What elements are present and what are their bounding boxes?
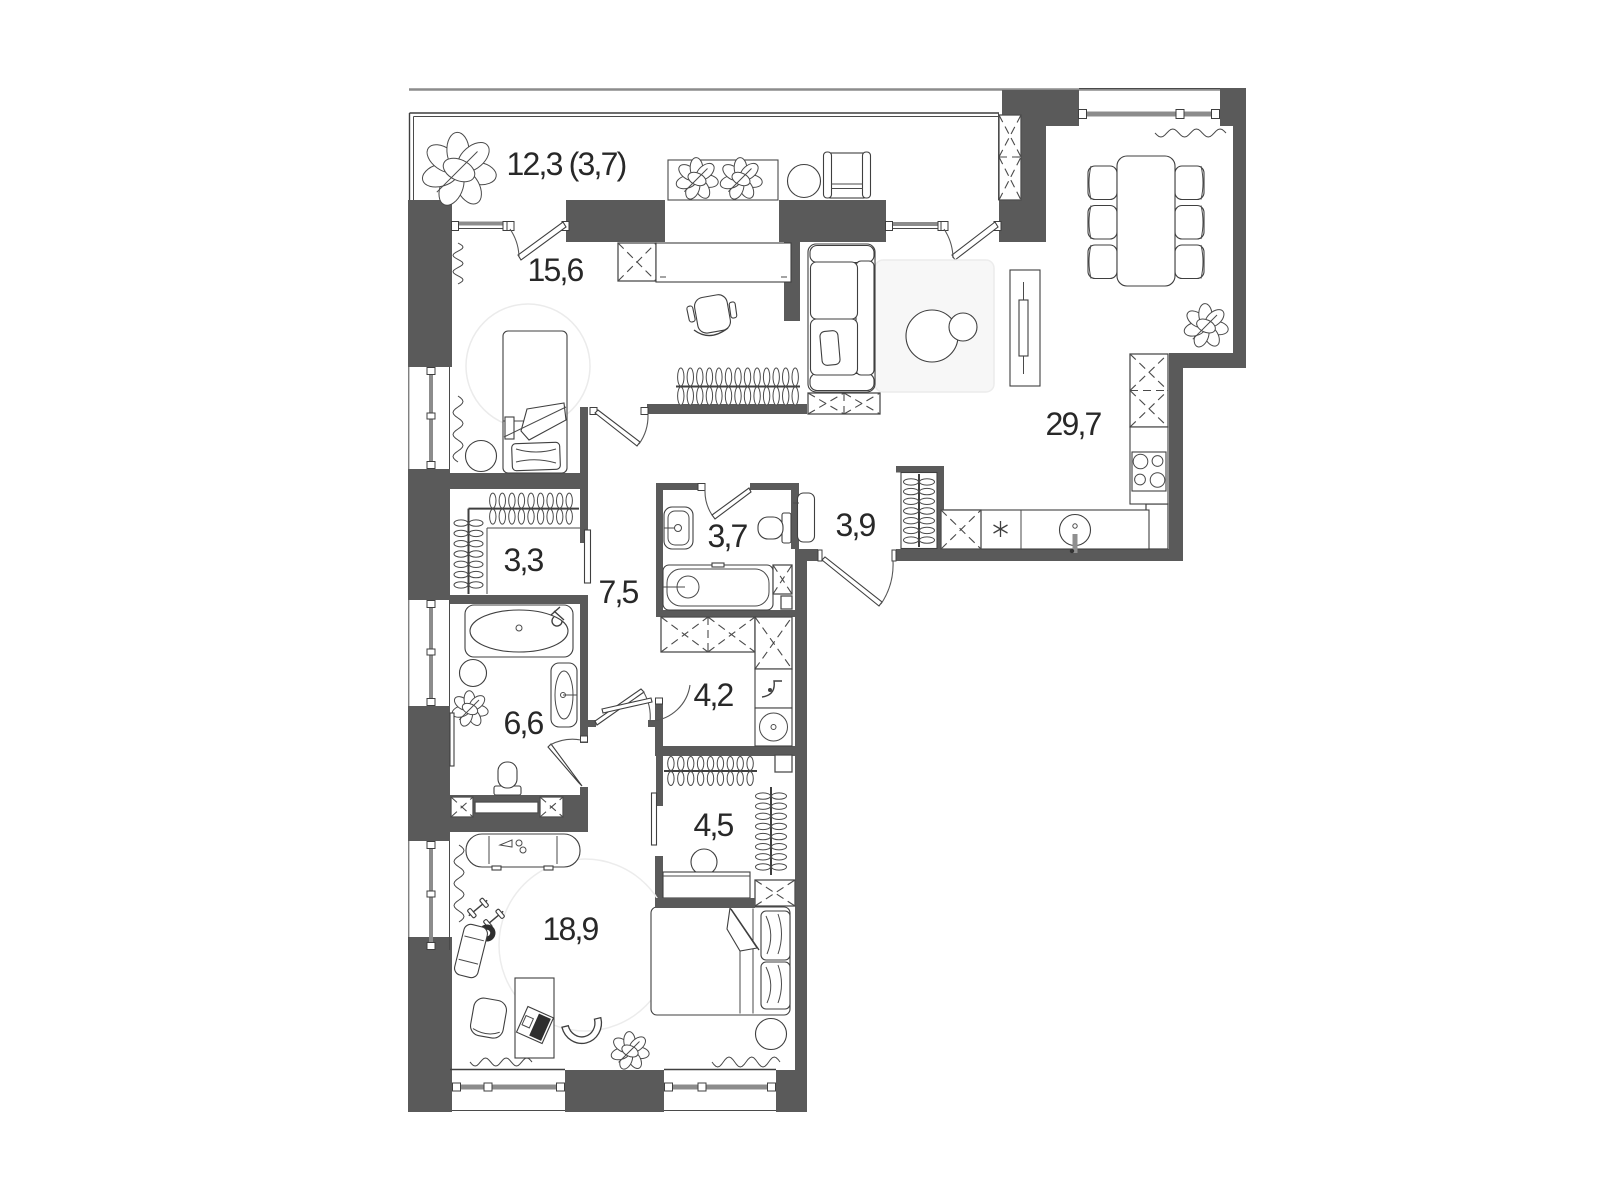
svg-text:6,6: 6,6 [503,705,543,741]
svg-text:3,3: 3,3 [503,542,543,578]
svg-text:4,2: 4,2 [693,677,733,713]
svg-text:3,9: 3,9 [835,507,875,543]
svg-text:29,7: 29,7 [1045,406,1101,442]
svg-text:12,3 (3,7): 12,3 (3,7) [507,146,626,182]
svg-text:15,6: 15,6 [527,252,583,288]
svg-text:7,5: 7,5 [598,574,638,610]
svg-text:18,9: 18,9 [542,911,598,947]
svg-text:4,5: 4,5 [693,807,733,843]
svg-text:3,7: 3,7 [707,518,747,554]
